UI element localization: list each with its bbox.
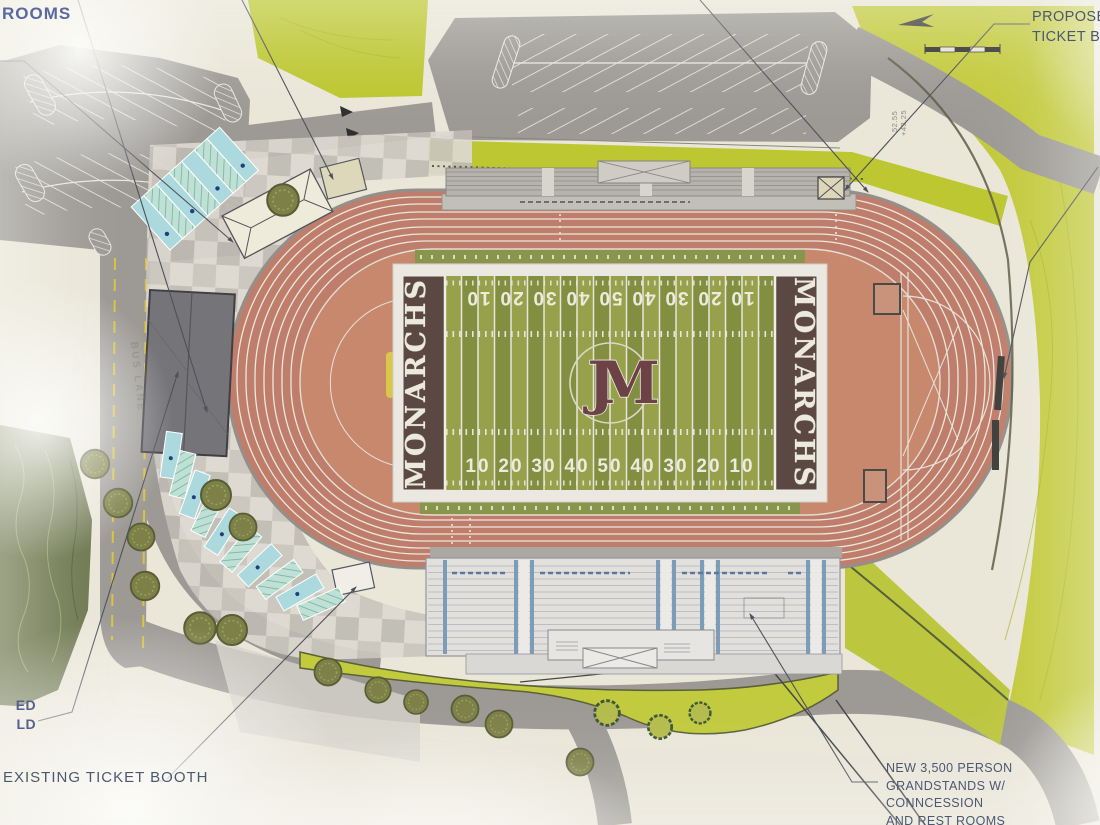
svg-text:10: 10 [465, 456, 490, 477]
site-plan-photo: BUS LANE [0, 0, 1100, 825]
annotation-field-partial: ED LD [0, 696, 36, 734]
svg-text:50: 50 [597, 287, 622, 308]
proposed-ticket-booth [818, 177, 844, 199]
south-grandstand [426, 547, 842, 674]
svg-text:+43.25: +43.25 [899, 110, 908, 136]
svg-text:20: 20 [696, 456, 721, 477]
svg-text:30: 30 [531, 287, 556, 308]
annotation-line: GRANDSTANDS W/ [886, 778, 1013, 796]
endzone-text-left: MONARCHS [401, 277, 432, 489]
riparian-area [0, 425, 92, 715]
endzone-text-right: MONARCHS [788, 277, 819, 489]
annotation-existing-ticket-booth: EXISTING TICKET BOOTH [3, 768, 208, 788]
football-field: JM MONARCHS MONARCHS 10 20 30 40 50 40 3… [393, 264, 827, 502]
north-grandstand [432, 161, 864, 210]
annotation-line: NEW 3,500 PERSON [886, 760, 1013, 778]
annotation-proposed-ticket-booth: PROPOSED N TICKET BOOT [1032, 8, 1100, 47]
annotation-restrooms: ROOMS [2, 3, 71, 26]
site-plan-drawing: BUS LANE [0, 0, 1100, 825]
svg-text:50: 50 [597, 456, 622, 477]
svg-text:20: 20 [696, 287, 721, 308]
svg-text:40: 40 [564, 456, 589, 477]
annotation-line: TICKET BOOT [1032, 28, 1100, 48]
svg-text:40: 40 [630, 287, 655, 308]
annotation-new-grandstands: NEW 3,500 PERSON GRANDSTANDS W/ CONNCESS… [886, 760, 1013, 825]
existing-building [142, 290, 235, 456]
annotation-line: LD [0, 715, 36, 734]
svg-text:20: 20 [498, 456, 523, 477]
svg-text:30: 30 [663, 456, 688, 477]
north-parking-lot [490, 34, 829, 134]
svg-text:30: 30 [663, 287, 688, 308]
press-box [598, 161, 690, 183]
annotation-line: AND REST ROOMS [886, 813, 1013, 825]
annotation-line: CONNCESSION [886, 795, 1013, 813]
yard-numbers-bottom: 10 20 30 40 50 40 30 20 10 [465, 456, 754, 477]
svg-text:10: 10 [729, 287, 754, 308]
svg-text:10: 10 [465, 287, 490, 308]
svg-text:10: 10 [729, 456, 754, 477]
svg-text:52.55: 52.55 [890, 111, 899, 132]
annotation-line: ED [0, 696, 36, 715]
svg-text:40: 40 [564, 287, 589, 308]
yard-numbers-top: 10 20 30 40 50 40 30 20 10 [465, 287, 754, 308]
annotation-line: PROPOSED N [1032, 8, 1100, 28]
svg-text:20: 20 [498, 287, 523, 308]
svg-text:30: 30 [531, 456, 556, 477]
svg-text:40: 40 [630, 456, 655, 477]
